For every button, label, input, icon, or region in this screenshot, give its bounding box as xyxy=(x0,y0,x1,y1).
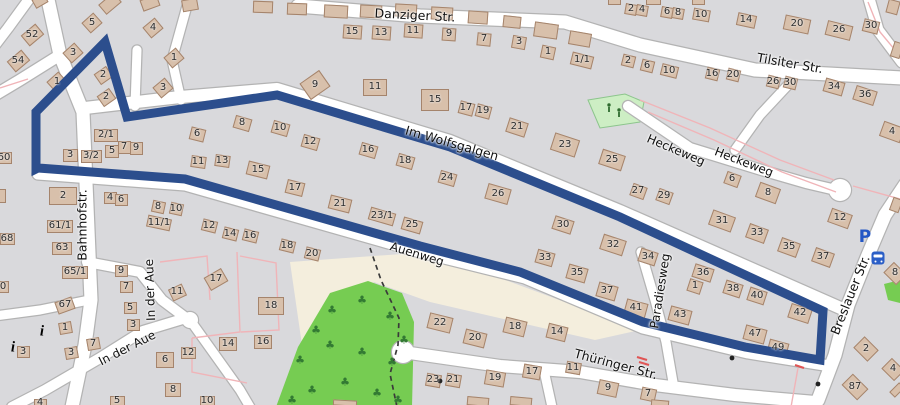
house-number: 10 xyxy=(274,123,287,133)
house-number: 17 xyxy=(289,183,302,193)
bus-stop-icon xyxy=(872,252,885,265)
house-number: 37 xyxy=(817,252,830,262)
house-number: 8 xyxy=(170,385,176,395)
house-number: 5 xyxy=(109,146,115,156)
house-number: 14 xyxy=(551,327,564,337)
house-number: 1 xyxy=(692,281,698,291)
house-number: 1/1 xyxy=(574,55,590,65)
house-number: 10 xyxy=(695,10,708,20)
house-number: 12 xyxy=(203,221,216,231)
house-number: 35 xyxy=(571,268,584,278)
house-number: 36 xyxy=(859,90,872,100)
house-number: 49 xyxy=(772,343,785,353)
house-number: 18 xyxy=(281,241,294,251)
house-number: 21 xyxy=(511,122,524,132)
house-number: 10 xyxy=(170,204,183,214)
tree-icon: ♣ xyxy=(311,325,321,336)
house-number: 37 xyxy=(601,286,614,296)
house-number: 41 xyxy=(630,303,643,313)
tree-icon: ♣ xyxy=(287,395,297,405)
house-number: 10 xyxy=(663,66,676,76)
house-number: 3 xyxy=(20,347,26,357)
street-label-th-ringer-str-: Thüringer Str. xyxy=(573,346,660,383)
house-number: 65/1 xyxy=(64,267,86,277)
house-number: 60 xyxy=(0,153,10,163)
house-number: 25 xyxy=(406,220,419,230)
tree-icon: ♣ xyxy=(399,335,409,346)
house-number: 9 xyxy=(446,29,452,39)
house-number: 1 xyxy=(171,53,177,63)
house-number: 4 xyxy=(150,23,156,33)
house-number: 30 xyxy=(557,220,570,230)
house-number: 7 xyxy=(481,34,487,44)
tree-icon: ♣ xyxy=(385,311,395,322)
house-number: 5 xyxy=(114,396,120,405)
tree-icon: ♣ xyxy=(387,357,397,368)
house-number: 67 xyxy=(59,300,72,310)
house-number: 4 xyxy=(639,5,645,15)
house-number: 20 xyxy=(469,333,482,343)
house-number: 18 xyxy=(265,301,278,311)
house-number: 54 xyxy=(12,56,25,66)
house-number: 5 xyxy=(127,303,133,313)
house-number: 18 xyxy=(509,322,522,332)
house-number: 20 xyxy=(306,249,319,259)
house-number: 6 xyxy=(664,7,670,17)
house-number: 16 xyxy=(257,337,270,347)
house-number: 16 xyxy=(706,69,719,79)
house-number: 9 xyxy=(605,383,611,393)
house-number: 16 xyxy=(244,231,257,241)
tree-icon: ♣ xyxy=(307,385,317,396)
house-number: 34 xyxy=(828,82,841,92)
house-number: 2 xyxy=(60,191,66,201)
house-number: 2 xyxy=(863,344,869,354)
house-number: 11 xyxy=(407,26,420,36)
house-number: 3 xyxy=(130,320,136,330)
house-number: 20 xyxy=(791,19,804,29)
tree-icon: ♣ xyxy=(327,305,337,316)
tree-icon: ♣ xyxy=(393,395,403,405)
house-number: 23 xyxy=(559,140,572,150)
house-number: 8 xyxy=(892,268,898,278)
info-icon: i xyxy=(40,324,44,341)
tree-icon: ♣ xyxy=(357,295,367,306)
house-number: 63 xyxy=(56,243,69,253)
parking-icon: P xyxy=(859,227,871,247)
house-number: 11 xyxy=(567,363,580,373)
house-number: 68 xyxy=(1,234,14,244)
house-number: 20 xyxy=(727,70,740,80)
house-number: 13 xyxy=(216,156,229,166)
tree-icon: ♣ xyxy=(372,388,382,399)
house-number: 15 xyxy=(346,27,359,37)
house-number: 12 xyxy=(834,213,847,223)
house-number: 35 xyxy=(783,242,796,252)
street-label-breslauer-str-: Breslauer Str. xyxy=(827,253,872,337)
map-canvas[interactable]: ♣♣♣♣♣♣♣♣♣♣♣♣♣♣5254531224132/133/25791513… xyxy=(0,0,900,405)
house-number: 21 xyxy=(334,199,347,209)
street-label-im-wolfsgalgen: Im Wolfsgalgen xyxy=(404,123,501,164)
house-number: 12 xyxy=(304,137,317,147)
house-number: 4 xyxy=(890,364,896,374)
house-number: 34 xyxy=(642,252,655,262)
house-number: 31 xyxy=(716,216,729,226)
house-number: 22 xyxy=(434,318,447,328)
house-number: 29 xyxy=(658,191,671,201)
house-number: 0 xyxy=(0,282,6,292)
house-number: 4 xyxy=(889,127,895,137)
house-number: 9 xyxy=(133,143,139,153)
house-number: 6 xyxy=(194,129,200,139)
house-number: 3 xyxy=(70,48,76,58)
house-number: 2 xyxy=(103,92,109,102)
house-number: 21 xyxy=(447,375,460,385)
street-label-heckeweg: Heckeweg xyxy=(645,131,707,168)
house-number: 1 xyxy=(545,47,551,57)
house-number: 1 xyxy=(54,77,60,87)
street-label-heckeweg: Heckeweg xyxy=(713,144,776,179)
house-number: 87 xyxy=(849,382,862,392)
house-number: 9 xyxy=(312,80,318,90)
house-number: 9 xyxy=(118,266,124,276)
house-number: 18 xyxy=(399,156,412,166)
tree-icon: ♣ xyxy=(325,340,335,351)
house-number: 24 xyxy=(441,173,454,183)
house-number: 47 xyxy=(749,329,762,339)
house-number: 1 xyxy=(62,323,68,333)
house-number: 4 xyxy=(37,398,43,405)
house-number: 2/1 xyxy=(98,130,114,140)
house-number: 6 xyxy=(118,195,124,205)
street-label-in-der-aue: In der Aue xyxy=(142,259,158,321)
house-number: 23 xyxy=(427,375,440,385)
house-number: 14 xyxy=(222,339,235,349)
house-number: 3 xyxy=(516,37,522,47)
house-number: 38 xyxy=(727,284,740,294)
house-number: 25 xyxy=(606,155,619,165)
house-number: 7 xyxy=(123,282,129,292)
house-number: 8 xyxy=(239,118,245,128)
street-label-bahnhofstr-: Bahnhofstr. xyxy=(75,189,90,260)
house-number: 32 xyxy=(607,240,620,250)
house-number: 7 xyxy=(90,339,96,349)
house-number: 15 xyxy=(252,165,265,175)
info-icon: i xyxy=(11,340,15,357)
house-number: 11/1 xyxy=(148,218,170,228)
house-number: 14 xyxy=(224,229,237,239)
house-number: 11 xyxy=(192,157,205,167)
house-number: 10 xyxy=(201,396,214,405)
house-number: 26 xyxy=(833,25,846,35)
house-number: 8 xyxy=(765,188,771,198)
street-label-paradiesweg: Paradiesweg xyxy=(647,252,673,329)
house-number: 13 xyxy=(375,28,388,38)
tree-icon: ♣ xyxy=(340,377,350,388)
house-number: 8 xyxy=(155,202,161,212)
house-number: 42 xyxy=(794,308,807,318)
house-number: 33 xyxy=(751,228,764,238)
house-number: 17 xyxy=(210,274,223,284)
street-label-in-der-aue: In der Aue xyxy=(96,328,158,369)
house-number: 33 xyxy=(539,253,552,263)
house-number: 11 xyxy=(369,82,382,92)
house-number: 61/1 xyxy=(49,221,71,231)
house-number: 5 xyxy=(89,18,95,28)
house-number: 3 xyxy=(160,83,166,93)
tree-icon: ♣ xyxy=(357,347,367,358)
house-number: 19 xyxy=(489,373,502,383)
house-number: 27 xyxy=(632,186,645,196)
house-number: 36 xyxy=(697,268,710,278)
house-number: 6 xyxy=(644,61,650,71)
house-number: 2 xyxy=(625,56,631,66)
house-number: 30 xyxy=(784,78,797,88)
house-number: 3 xyxy=(67,150,73,160)
house-number: 19 xyxy=(477,106,490,116)
house-number: 40 xyxy=(751,291,764,301)
house-number: 12 xyxy=(182,348,195,358)
house-number: 6 xyxy=(729,174,735,184)
house-number: 15 xyxy=(429,95,442,105)
house-number: 8 xyxy=(675,8,681,18)
street-label-auenweg: Auenweg xyxy=(388,239,445,269)
house-number: 3 xyxy=(68,348,74,358)
house-number: 30 xyxy=(865,21,878,31)
house-number: 23/1 xyxy=(371,211,393,221)
house-number: 11 xyxy=(171,287,184,297)
house-number: 4 xyxy=(107,193,113,203)
house-number: 3/2 xyxy=(83,151,99,161)
house-number: 52 xyxy=(26,30,39,40)
house-number: 6 xyxy=(162,355,168,365)
house-number: 2 xyxy=(100,70,106,80)
house-number: 7 xyxy=(121,142,127,152)
street-label-danziger-str-: Danziger Str. xyxy=(374,5,455,24)
house-number: 2 xyxy=(628,4,634,14)
house-number: 26 xyxy=(492,189,505,199)
street-label-tilsiter-str-: Tilsiter Str. xyxy=(756,50,824,76)
labels-layer: ♣♣♣♣♣♣♣♣♣♣♣♣♣♣5254531224132/133/25791513… xyxy=(0,0,900,405)
house-number: 26 xyxy=(767,77,780,87)
house-number: 14 xyxy=(740,15,753,25)
house-number: 7 xyxy=(645,389,651,399)
house-number: 17 xyxy=(460,103,473,113)
house-number: 16 xyxy=(362,145,375,155)
house-number: 43 xyxy=(674,310,687,320)
tree-icon: ♣ xyxy=(295,355,305,366)
house-number: 17 xyxy=(526,367,539,377)
